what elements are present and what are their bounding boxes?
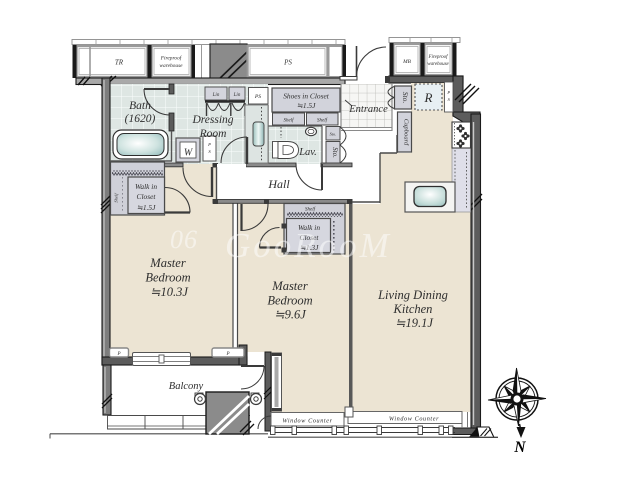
svg-text:Sto.: Sto.	[331, 147, 339, 158]
svg-text:Shelf: Shelf	[305, 208, 316, 213]
svg-text:Sto.: Sto.	[401, 92, 410, 104]
svg-text:P: P	[225, 352, 229, 357]
svg-text:Lin: Lin	[212, 93, 220, 98]
svg-text:P: P	[446, 90, 450, 95]
svg-text:Walk in: Walk in	[135, 182, 157, 191]
svg-text:Entrance: Entrance	[348, 104, 388, 115]
svg-text:PS: PS	[254, 94, 261, 100]
svg-text:Hall: Hall	[267, 177, 290, 191]
svg-text:GooRooM: GooRooM	[225, 226, 392, 265]
svg-text:≒1.5J: ≒1.5J	[297, 101, 316, 110]
svg-text:Lav.: Lav.	[298, 147, 317, 158]
svg-text:Master: Master	[149, 256, 186, 270]
svg-text:Shelf: Shelf	[114, 193, 119, 203]
svg-text:TR: TR	[115, 59, 124, 67]
svg-text:N: N	[513, 439, 526, 456]
svg-text:Dressing: Dressing	[191, 114, 233, 126]
svg-text:Bedroom: Bedroom	[145, 271, 190, 285]
svg-text:≒19.1J: ≒19.1J	[395, 316, 434, 330]
svg-text:Shelf: Shelf	[284, 119, 295, 124]
svg-text:Bedroom: Bedroom	[267, 294, 312, 308]
svg-text:06: 06	[170, 225, 198, 254]
svg-text:Closet: Closet	[137, 192, 157, 201]
svg-text:Master: Master	[271, 279, 308, 293]
svg-text:≒9.6J: ≒9.6J	[274, 308, 307, 322]
svg-text:Kitchen: Kitchen	[393, 302, 433, 316]
svg-text:P: P	[207, 142, 211, 147]
svg-text:Room: Room	[199, 128, 227, 140]
svg-text:Fireproof: Fireproof	[160, 55, 183, 62]
svg-text:Balcony: Balcony	[169, 381, 204, 392]
svg-text:Window Counter: Window Counter	[282, 418, 332, 425]
svg-text:Cupboard: Cupboard	[403, 119, 410, 146]
svg-text:warehouse: warehouse	[159, 63, 183, 69]
svg-text:R: R	[424, 90, 433, 105]
svg-text:PS: PS	[283, 59, 292, 67]
svg-text:Shelf: Shelf	[317, 119, 328, 124]
svg-text:Window Counter: Window Counter	[389, 416, 439, 423]
svg-text:Bath: Bath	[129, 100, 151, 112]
svg-text:Sto.: Sto.	[330, 132, 337, 137]
svg-text:P: P	[116, 352, 120, 357]
svg-text:warehouse: warehouse	[427, 62, 449, 67]
svg-text:Living Dining: Living Dining	[377, 288, 448, 302]
svg-text:Shoes in Closet: Shoes in Closet	[283, 92, 330, 101]
svg-text:(1620): (1620)	[125, 113, 156, 125]
svg-text:≒1.5J: ≒1.5J	[137, 203, 156, 212]
svg-text:Lin: Lin	[233, 93, 241, 98]
svg-text:MB: MB	[402, 59, 411, 65]
svg-text:≒10.3J: ≒10.3J	[150, 285, 189, 299]
svg-text:Fireproof: Fireproof	[427, 55, 448, 60]
